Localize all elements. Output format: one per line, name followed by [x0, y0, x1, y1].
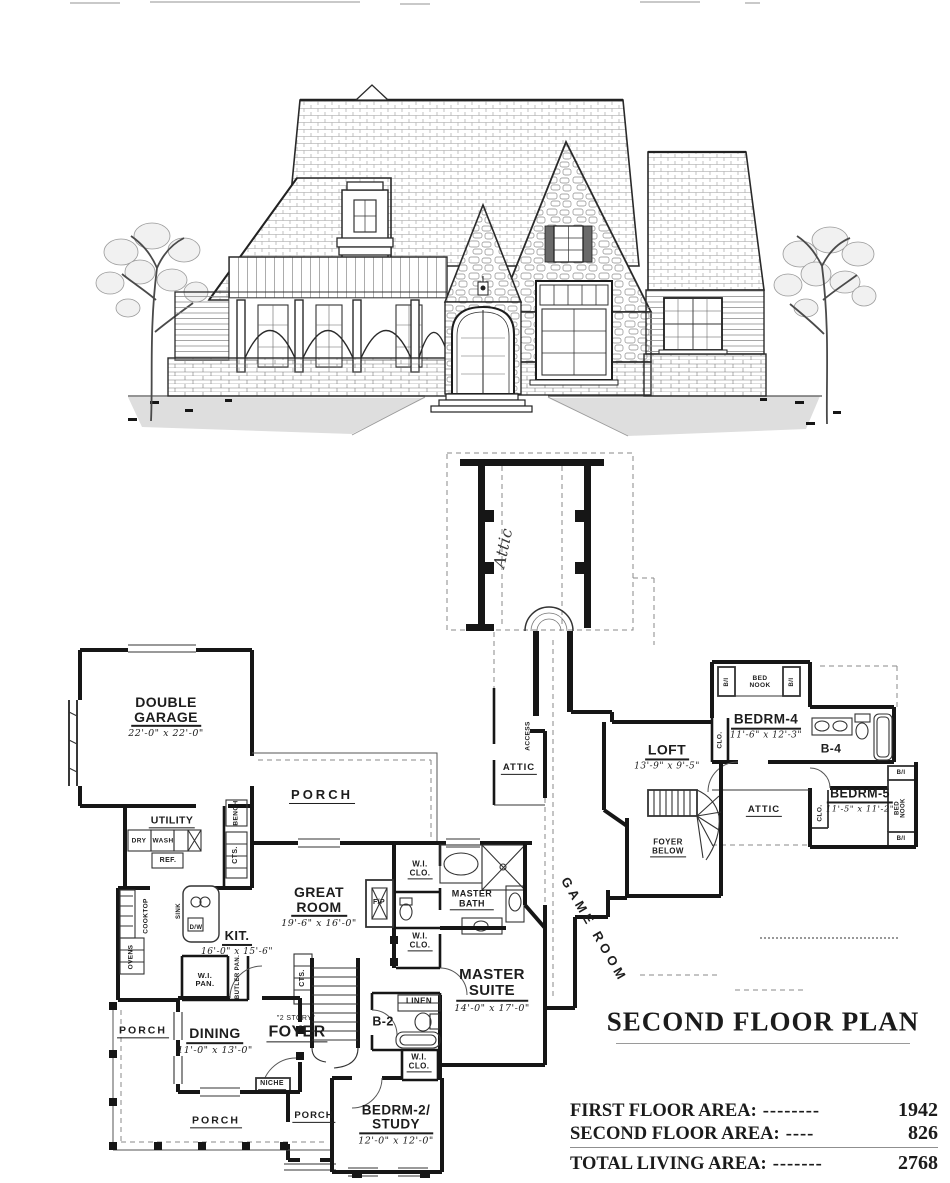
chimney [337, 182, 393, 262]
label-bed-nook-top: BED NOOK [749, 675, 770, 689]
label-two-story: "2 STORY" [277, 1015, 315, 1023]
label-sink: SINK [176, 903, 182, 919]
room-name: BEDRM-2/ STUDY [359, 1103, 433, 1134]
area-value: 826 [908, 1122, 938, 1145]
entry-steps [431, 394, 532, 412]
room-dims: 14'-0" x 17'-0" [454, 1003, 530, 1013]
label-bed-nook-right: BED NOOK [895, 798, 908, 818]
room-dining: DINING 11'-0" x 13'-0" [177, 1026, 253, 1056]
label-ovens: OVENS [127, 945, 134, 970]
room-dims: 11'-0" x 13'-0" [177, 1046, 253, 1056]
room-dims: 12'-0" x 12'-0" [358, 1137, 434, 1147]
room-kitchen: KIT. 16'-0" x 15'-6" [201, 929, 273, 957]
room-name: GREAT ROOM [291, 885, 347, 917]
elevation-drawing [96, 85, 876, 436]
area-value: 2768 [898, 1152, 938, 1175]
room-dims: 19'-6" x 16'-0" [281, 919, 357, 929]
label-attic-access: ACCESS [524, 721, 531, 751]
room-dims: 22'-0" x 22'-0" [128, 729, 204, 739]
label-butler-pantry: BUTLER PAN. [235, 955, 241, 999]
label-foyer: FOYER [266, 1023, 327, 1042]
second-floor-plan-linework [494, 632, 916, 1008]
area-row-total: TOTAL LIVING AREA: ------- 2768 [570, 1152, 938, 1175]
room-name: LOFT [645, 742, 689, 760]
label-cts-mud: CTS. [232, 846, 240, 864]
area-dashes: -------- [763, 1101, 820, 1122]
room-dims: 13'-9" x 9'-5" [634, 762, 700, 771]
title-underline [616, 1043, 910, 1044]
two-story-window [530, 281, 618, 385]
label-attic-right: ATTIC [746, 805, 782, 817]
label-builtin-right: B/I [789, 678, 795, 687]
label-wi-closet-2: W.I. CLO. [408, 932, 433, 951]
label-fireplace: F/P [373, 899, 385, 907]
room-dims: 11'-6" x 12'-3" [730, 732, 802, 741]
attic-plan-fragment [447, 453, 654, 716]
label-refrigerator: REF. [160, 857, 177, 865]
second-floor-plan-title: SECOND FLOOR PLAN [607, 1007, 920, 1038]
room-name: BEDRM-4 [731, 713, 801, 730]
room-bedrm2-study: BEDRM-2/ STUDY 12'-0" x 12'-0" [358, 1103, 434, 1146]
room-name: BEDRM-5 [827, 787, 893, 803]
label-cooktop: COOKTOP [142, 898, 149, 934]
room-bedrm4: BEDRM-4 11'-6" x 12'-3" [730, 713, 802, 742]
area-table: FIRST FLOOR AREA: -------- 1942 SECOND F… [570, 1099, 938, 1175]
label-porch-bottom: PORCH [190, 1115, 242, 1128]
area-label: TOTAL LIVING AREA: [570, 1154, 767, 1175]
room-name: DINING [186, 1026, 243, 1044]
label-porch-left: PORCH [117, 1025, 169, 1038]
room-name: DOUBLE GARAGE [131, 695, 201, 727]
label-master-bath: MASTER BATH [450, 889, 494, 910]
area-dashes: ---- [786, 1124, 815, 1145]
room-master-suite: MASTER SUITE 14'-0" x 17'-0" [454, 967, 530, 1013]
label-porch-entry: PORCH [292, 1111, 335, 1123]
room-loft: LOFT 13'-9" x 9'-5" [634, 742, 700, 771]
label-wi-closet-1: W.I. CLO. [408, 860, 433, 879]
room-bedrm5: BEDRM-5 11'-5" x 11'-2" [826, 787, 894, 814]
room-name: MASTER SUITE [456, 967, 528, 1002]
label-closet-hall: CLO. [716, 731, 723, 748]
label-wi-closet-3: W.I. CLO. [407, 1053, 432, 1072]
front-door [452, 307, 514, 394]
room-great-room: GREAT ROOM 19'-6" x 16'-0" [281, 885, 357, 929]
right-wing-window [659, 298, 727, 354]
tree-right [774, 227, 876, 424]
room-dims: 11'-5" x 11'-2" [826, 806, 894, 815]
area-label: FIRST FLOOR AREA: [570, 1101, 757, 1122]
label-builtin-left: B/I [724, 678, 730, 687]
blueprint-sheet: .w{stroke:#161616;stroke-width:4;fill:no… [0, 0, 950, 1183]
label-wi-pantry: W.I. PAN. [196, 972, 215, 988]
area-value: 1942 [898, 1099, 938, 1122]
label-dryer: DRY [132, 837, 147, 844]
label-bench: BENCH [232, 800, 239, 825]
label-washer: WASH [152, 837, 173, 844]
label-bath-4: B-4 [821, 743, 842, 756]
label-bath-2: B-2 [372, 1015, 393, 1029]
label-attic-left: ATTIC [501, 763, 537, 775]
label-cts-stair: CTS. [299, 969, 307, 987]
label-builtin-nook-bottom: B/I [897, 836, 906, 842]
label-foyer-below: FOYER BELOW [650, 838, 686, 857]
label-linen: LINEN [406, 998, 432, 1007]
label-porch-top: PORCH [289, 788, 355, 804]
label-builtin-nook-top: B/I [897, 770, 906, 776]
room-double-garage: DOUBLE GARAGE 22'-0" x 22'-0" [128, 695, 204, 739]
area-row-second-floor: SECOND FLOOR AREA: ---- 826 [570, 1122, 938, 1145]
label-closet-bedrm5: CLO. [816, 804, 823, 821]
label-niche: NICHE [258, 1080, 286, 1090]
shuttered-window [545, 226, 592, 262]
label-utility: UTILITY [149, 815, 195, 828]
area-label: SECOND FLOOR AREA: [570, 1124, 780, 1145]
room-name: KIT. [222, 929, 253, 946]
scan-artifacts [70, 2, 760, 4]
area-dashes: ------- [773, 1154, 823, 1175]
area-row-first-floor: FIRST FLOOR AREA: -------- 1942 [570, 1099, 938, 1122]
area-table-divider [570, 1147, 938, 1148]
